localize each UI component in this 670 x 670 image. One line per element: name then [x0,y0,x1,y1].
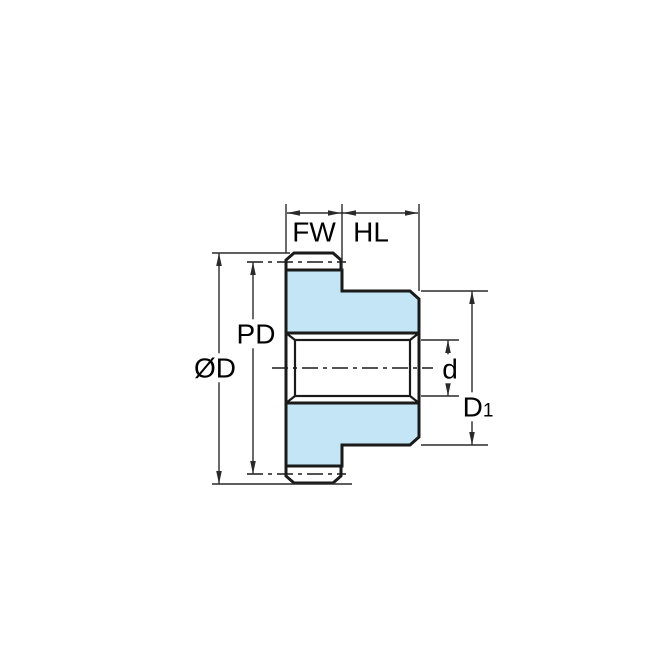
d1-arrow-bottom [469,432,475,445]
gear-upper-body-shape [286,270,419,333]
hub-diameter-label-subscript: 1 [483,400,494,421]
face-width-label: FW [289,217,339,246]
hub-diameter-label-main: D [463,391,483,422]
fw-arrow-left [287,210,300,216]
gear-lower-body-shape [286,403,419,466]
pd-arrow-top [250,262,256,275]
od-arrow-bottom [216,471,222,484]
outside-diameter-label: ØD [191,353,239,382]
pd-arrow-bottom [250,461,256,474]
hl-arrow-left [343,210,356,216]
bore-diameter-label: d [439,354,461,383]
hl-arrow-right [405,210,418,216]
d-arrow-top [445,340,451,353]
od-arrow-top [216,253,222,266]
d-arrow-bottom [445,383,451,396]
d1-arrow-top [469,291,475,304]
gear-drawing-canvas: FW HL PD ØD d D1 [0,0,670,670]
gear-diagram-svg [0,0,670,670]
hub-diameter-label: D1 [460,392,497,421]
hub-length-label: HL [350,217,392,246]
pitch-diameter-label: PD [234,319,279,348]
fw-arrow-right [328,210,341,216]
